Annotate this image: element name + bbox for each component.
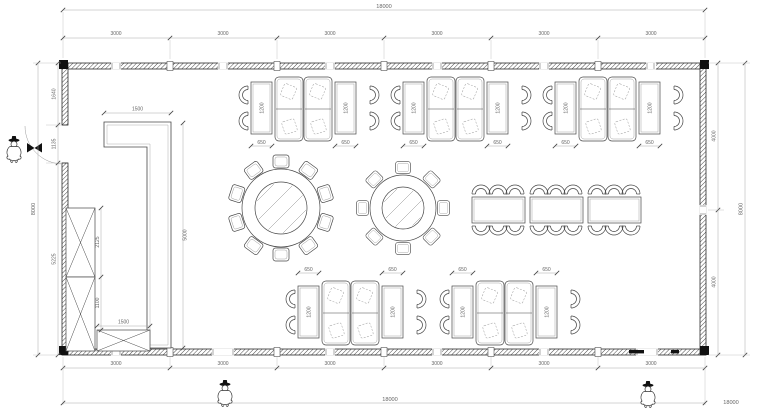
dim-label: 4000 — [712, 130, 718, 141]
dim-label: 3000 — [110, 31, 121, 37]
dim-label: 3000 — [217, 361, 228, 367]
right-dimensions: 4000 4000 8000 — [708, 61, 750, 357]
cabinet-lower — [66, 277, 95, 351]
window-break-right — [700, 205, 707, 215]
floor-plan-page: 1200 650 650 — [0, 0, 772, 414]
dim-label: 2125 — [95, 236, 101, 247]
person-figure-icon — [641, 381, 655, 407]
counter-length-dimension: 5000 — [181, 121, 189, 350]
banquet-table — [530, 197, 583, 223]
floor-plan-canvas: 1200 650 650 — [0, 0, 772, 414]
booth-group-bottom-1 — [286, 267, 426, 345]
column — [700, 346, 709, 355]
booth-group-bottom-2 — [440, 267, 580, 345]
left-dimensions: 8000 1640 1135 5225 — [31, 61, 61, 357]
bottom-dimensions: 3000 3000 3000 3000 3000 3000 18000 1800… — [61, 357, 739, 406]
dim-label: 3000 — [324, 31, 335, 37]
dim-label: 1640 — [52, 88, 58, 99]
column — [700, 60, 709, 69]
person-figure-icon — [7, 136, 21, 162]
booth-group-top-3 — [543, 77, 683, 148]
banquet-table-row — [472, 185, 641, 235]
person-figure-icon — [218, 380, 232, 406]
dim-label: 3000 — [431, 361, 442, 367]
dim-label: 5225 — [52, 253, 58, 264]
dim-label: 1500 — [132, 107, 143, 113]
dim-label-overall: 18000 — [382, 397, 398, 403]
wall-left-upper — [62, 63, 68, 125]
top-dimensions: 18000 3000 3000 3000 3000 3000 3000 — [61, 4, 707, 59]
booth-group-top-2 — [391, 77, 531, 148]
round-table-8 — [357, 162, 450, 255]
door-leaf — [629, 350, 644, 353]
dim-label: 3000 — [645, 31, 656, 37]
dim-label: 3000 — [538, 361, 549, 367]
banquet-table — [472, 197, 525, 223]
dim-label-overall: 18000 — [376, 4, 392, 10]
entrance-opening-center — [212, 349, 234, 356]
dim-label: 3000 — [538, 31, 549, 37]
counter-width-dimension: 1500 — [102, 107, 173, 116]
cabinets: 2125 1100 1500 — [66, 206, 152, 351]
door-leaf — [671, 350, 679, 353]
dim-label: 3000 — [431, 31, 442, 37]
column — [59, 60, 68, 69]
cabinet-dimensions: 2125 1100 1500 — [95, 206, 152, 332]
dim-label: 3000 — [324, 361, 335, 367]
round-table-10 — [228, 142, 334, 261]
entrance-door-left — [25, 125, 68, 164]
dim-label: 4000 — [712, 276, 718, 287]
bar-counter: 1500 5000 — [102, 107, 189, 351]
booth-group-top-1 — [239, 77, 379, 148]
dim-label: 1500 — [118, 320, 129, 326]
dim-label: 1100 — [95, 297, 101, 308]
cabinet-base — [97, 330, 150, 351]
dim-label-overall: 18000 — [723, 400, 739, 406]
dim-label: 1135 — [52, 138, 58, 149]
dim-label: 3000 — [110, 361, 121, 367]
dim-label: 5000 — [183, 229, 189, 240]
dim-label: 3000 — [217, 31, 228, 37]
cabinet-upper — [66, 208, 95, 277]
dim-label-overall: 8000 — [739, 203, 745, 215]
banquet-table — [588, 197, 641, 223]
dim-label-overall: 8000 — [31, 203, 37, 215]
dim-label: 3000 — [645, 361, 656, 367]
